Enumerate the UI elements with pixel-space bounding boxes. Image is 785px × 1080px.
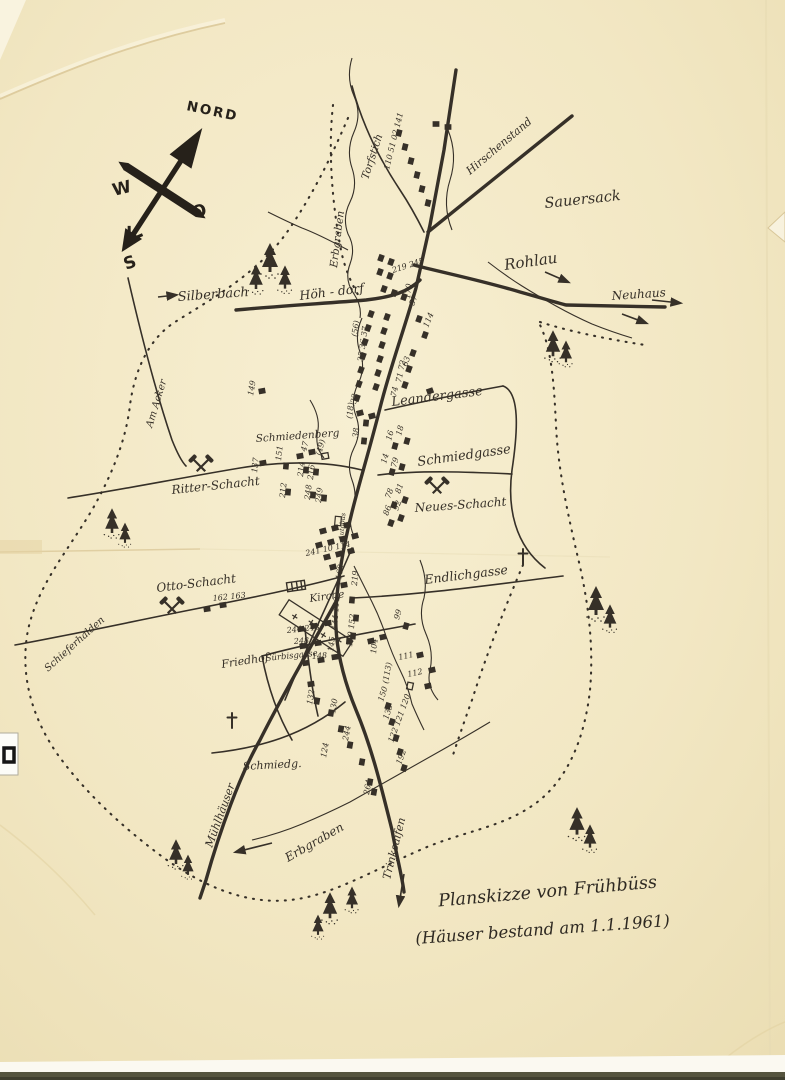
house-marker <box>349 596 355 603</box>
house-marker <box>314 640 322 646</box>
house-number: 137 <box>250 456 261 473</box>
village-map-svg: NORD W O S 110 51 02 141219 245170149571… <box>0 0 785 1080</box>
house-marker <box>259 460 267 467</box>
house-marker <box>302 660 310 666</box>
house-marker <box>445 124 452 130</box>
house-number: (18) <box>345 402 356 419</box>
house-number: 151 <box>274 445 285 461</box>
house-number: 38 <box>351 427 361 438</box>
map-sheet: NORD W O S 110 51 02 141219 245170149571… <box>0 0 785 1080</box>
house-marker <box>363 419 369 426</box>
house-number: 214 <box>296 461 307 478</box>
house-marker <box>361 437 367 444</box>
house-number: 104 <box>369 638 380 654</box>
paper-tab <box>0 733 18 775</box>
house-number: 248 <box>303 484 314 501</box>
house-marker <box>331 654 339 660</box>
house-marker <box>347 741 354 749</box>
house-marker <box>219 602 227 608</box>
house-marker <box>258 388 266 395</box>
house-marker <box>359 758 366 766</box>
house-marker <box>283 462 289 469</box>
house-number: 249 <box>314 487 325 504</box>
house-marker <box>433 121 440 127</box>
house-number: 248 <box>293 636 310 646</box>
house-marker <box>340 582 348 589</box>
house-number: 219 <box>350 570 360 587</box>
house-number: 212 <box>278 482 289 499</box>
house-marker <box>296 453 304 460</box>
house-marker <box>307 681 315 687</box>
house-marker <box>203 606 211 612</box>
house-number: 216 <box>306 464 317 481</box>
